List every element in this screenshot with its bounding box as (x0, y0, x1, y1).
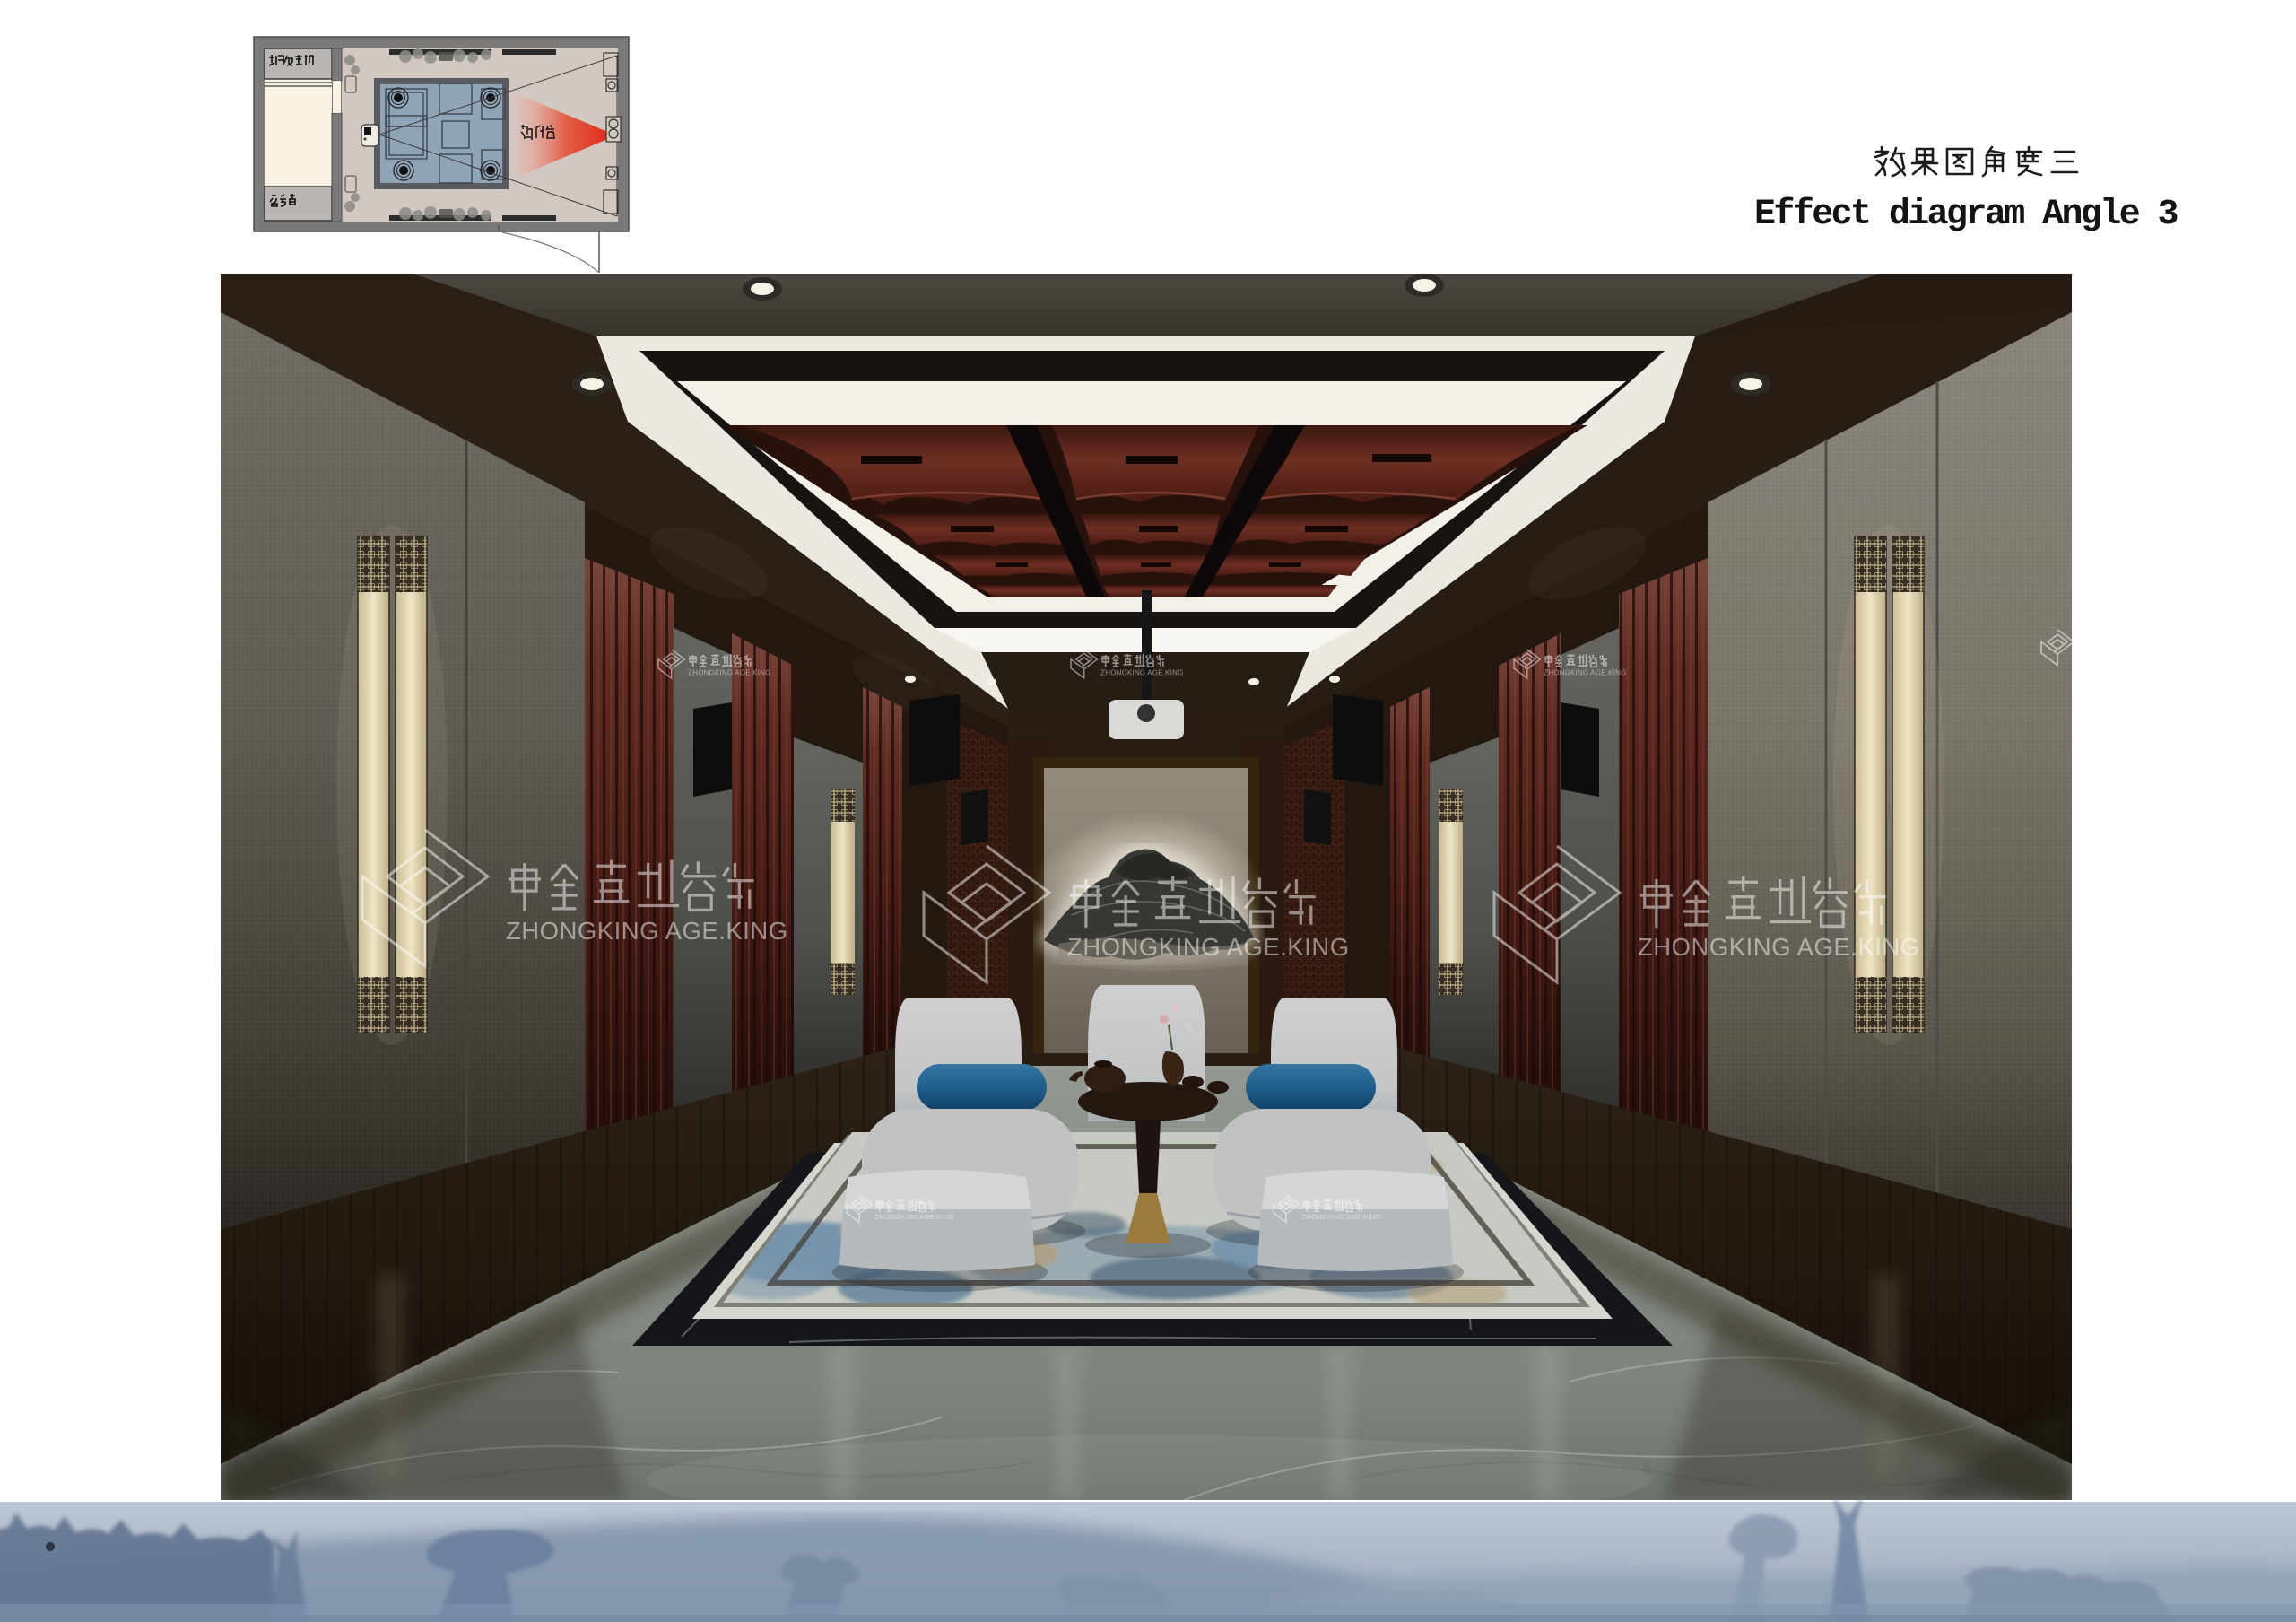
svg-text:Effect diagram Angle 3: Effect diagram Angle 3 (1754, 195, 2177, 235)
svg-text:ZHONGKING AGE.KING: ZHONGKING AGE.KING (1638, 933, 1920, 961)
svg-text:ZHONGKING AGE.KING: ZHONGKING AGE.KING (1067, 933, 1350, 961)
svg-text:ZHONGKING AGE.KING: ZHONGKING AGE.KING (506, 917, 788, 945)
